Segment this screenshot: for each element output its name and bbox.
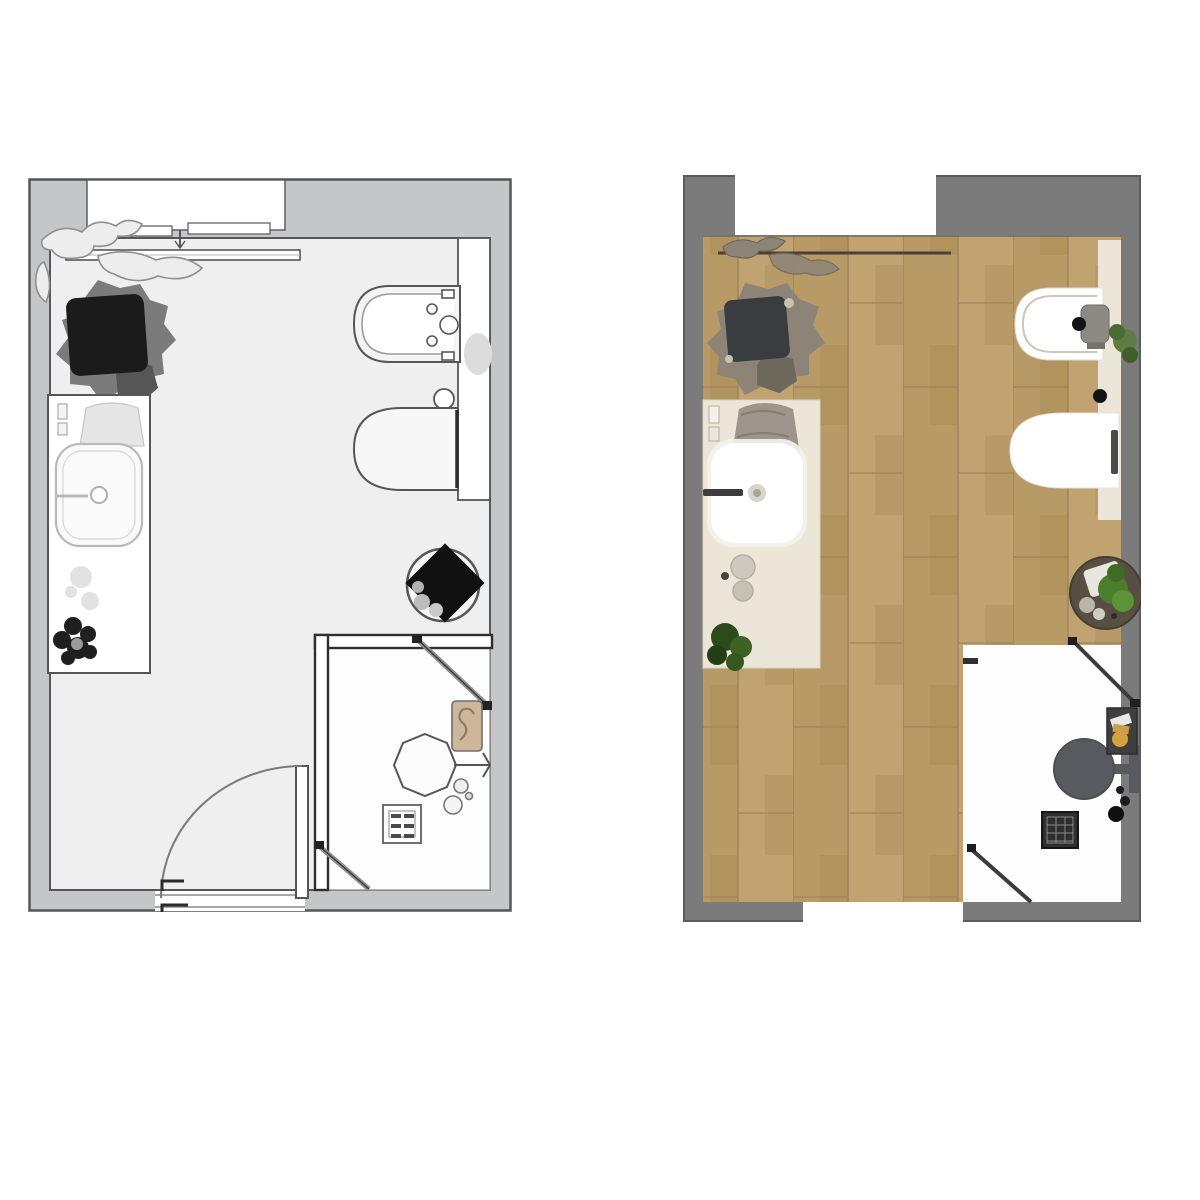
washbasin — [56, 444, 142, 546]
window-opening — [735, 175, 936, 235]
vanity-counter — [703, 400, 820, 671]
wall-towel — [464, 333, 492, 375]
faucet — [703, 489, 743, 496]
door-opening — [803, 902, 963, 922]
shower-shelf — [1107, 708, 1137, 754]
cosmetic-bottles — [58, 404, 67, 435]
floor-plan-rendered — [683, 175, 1141, 922]
floor-plan-schematic — [28, 178, 512, 912]
towel — [80, 403, 144, 446]
toilet — [1010, 413, 1119, 488]
plant-foliage — [65, 293, 148, 376]
floor-plan-rendered-canvas — [683, 175, 1141, 922]
floor-plan-schematic-canvas — [28, 178, 512, 912]
vanity-counter — [48, 395, 150, 673]
floor-drain — [383, 805, 421, 843]
plant-foliage — [723, 295, 790, 362]
door-leaf — [296, 766, 308, 898]
window-sash-right — [188, 223, 270, 234]
flush-button — [1093, 389, 1107, 403]
round-planter — [1070, 557, 1141, 629]
drain — [91, 487, 107, 503]
shower-area — [963, 637, 1140, 902]
cosmetic-bottles — [709, 406, 719, 441]
shower-shelf — [452, 701, 482, 751]
shower-enclosure — [315, 635, 492, 890]
toilet — [354, 408, 458, 490]
shower-head — [394, 734, 456, 796]
flush-button — [434, 389, 454, 409]
washbasin — [703, 439, 807, 547]
floor-drain — [1042, 812, 1078, 848]
